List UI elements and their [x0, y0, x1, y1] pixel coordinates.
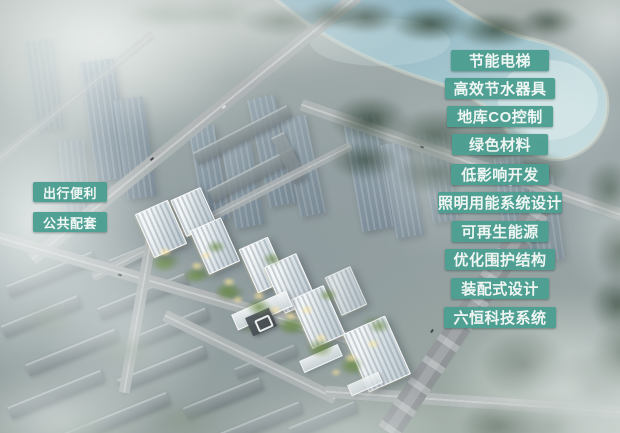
feature-label: 绿色材料	[452, 134, 548, 155]
haze-patch	[0, 360, 160, 433]
feature-label: 六恒科技系统	[444, 307, 556, 328]
light-glow	[344, 353, 358, 363]
feature-label: 照明用能系统设计	[438, 192, 562, 213]
light-glow	[232, 295, 244, 304]
light-glow	[366, 339, 380, 349]
feature-label: 低影响开发	[451, 164, 549, 185]
feature-label: 优化围护结构	[445, 249, 555, 270]
feature-label: 可再生能源	[452, 221, 549, 242]
haze-patch	[520, 360, 620, 433]
feature-label: 地库CO控制	[447, 106, 553, 127]
garden-tree	[262, 252, 282, 266]
haze-patch	[560, 150, 620, 300]
feature-label: 节能电梯	[451, 50, 549, 71]
aerial-site-rendering: 出行便利 公共配套 节能电梯 高效节水器具 地库CO控制 绿色材料 低影响开发 …	[0, 0, 620, 433]
light-glow	[300, 305, 314, 315]
haze-patch	[120, 0, 420, 80]
feature-label: 装配式设计	[451, 278, 549, 299]
feature-label: 出行便利	[33, 182, 107, 202]
light-glow	[252, 291, 266, 301]
garden-tree	[318, 288, 338, 302]
light-glow	[222, 277, 236, 287]
light-glow	[330, 368, 342, 377]
feature-label: 公共配套	[33, 212, 107, 232]
light-glow	[284, 311, 298, 321]
garden-tree	[368, 318, 390, 334]
haze-patch	[210, 380, 490, 433]
feature-label: 高效节水器具	[445, 78, 555, 99]
light-glow	[268, 305, 282, 315]
light-glow	[314, 333, 328, 343]
haze-patch	[540, 0, 620, 90]
